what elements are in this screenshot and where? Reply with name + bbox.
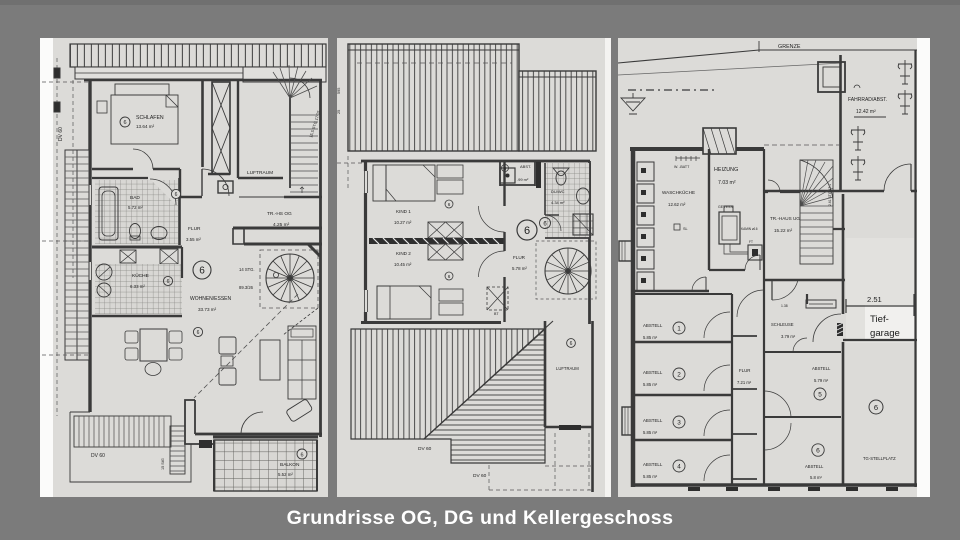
svg-text:595: 595 [337, 88, 341, 94]
svg-text:SCHLAFEN: SCHLAFEN [136, 115, 164, 121]
svg-text:5.8 m²: 5.8 m² [810, 475, 822, 480]
svg-text:89.3/26: 89.3/26 [239, 285, 254, 290]
svg-text:5.85 m²: 5.85 m² [643, 430, 658, 435]
svg-text:ABSTELL: ABSTELL [643, 323, 663, 328]
svg-text:6: 6 [175, 192, 178, 198]
svg-text:KÜCHE: KÜCHE [132, 272, 149, 279]
svg-text:1.38: 1.38 [781, 304, 788, 308]
svg-text:6: 6 [524, 225, 530, 237]
svg-text:KAMIN ø16: KAMIN ø16 [741, 227, 758, 231]
svg-text:Tief-: Tief- [870, 314, 889, 325]
svg-text:3.55 m²: 3.55 m² [186, 237, 201, 242]
svg-text:6: 6 [816, 448, 820, 455]
svg-text:DU/WC: DU/WC [551, 189, 565, 194]
svg-text:3: 3 [677, 420, 681, 427]
svg-text:2.61 STG 17.1: 2.61 STG 17.1 [828, 184, 832, 206]
svg-text:5.52 m²: 5.52 m² [278, 472, 293, 477]
svg-text:7.21 m²: 7.21 m² [737, 380, 752, 385]
svg-text:ABSTELL: ABSTELL [643, 418, 663, 423]
svg-text:5.79 m²: 5.79 m² [814, 378, 829, 383]
svg-text:garage: garage [870, 328, 900, 339]
svg-text:FLUR: FLUR [513, 255, 526, 260]
svg-text:5.72 m²: 5.72 m² [128, 205, 143, 210]
svg-text:5: 5 [818, 392, 822, 399]
svg-text:15.22 m²: 15.22 m² [774, 228, 793, 233]
svg-text:BT: BT [494, 312, 499, 316]
svg-text:6: 6 [167, 279, 170, 285]
svg-text:BAD: BAD [130, 195, 140, 201]
svg-text:6: 6 [300, 452, 303, 458]
svg-text:2.51: 2.51 [867, 295, 882, 304]
svg-text:W. -BATT: W. -BATT [674, 165, 690, 169]
svg-text:13.64 m²: 13.64 m² [136, 124, 155, 129]
svg-text:TR.-HS OG: TR.-HS OG [267, 211, 292, 217]
svg-text:LUFTRAUM: LUFTRAUM [556, 366, 579, 371]
svg-text:5.85 m²: 5.85 m² [643, 474, 658, 479]
svg-text:6: 6 [197, 330, 200, 336]
svg-text:ABSTELL: ABSTELL [812, 366, 831, 371]
svg-text:ABSTELL: ABSTELL [805, 464, 824, 469]
svg-text:DV 60: DV 60 [473, 473, 487, 479]
svg-text:6: 6 [199, 266, 205, 277]
svg-text:6: 6 [448, 202, 451, 207]
svg-text:WASCHKÜCHE: WASCHKÜCHE [662, 189, 695, 195]
svg-text:BALKON: BALKON [280, 462, 300, 468]
svg-text:6: 6 [570, 341, 573, 347]
svg-text:25: 25 [337, 110, 341, 114]
svg-text:TR.-HAUS UG: TR.-HAUS UG [770, 216, 800, 221]
svg-text:LUFTRAUM: LUFTRAUM [247, 170, 273, 176]
svg-text:ABST.: ABST. [520, 164, 531, 169]
svg-text:WOHNEN/ESSEN: WOHNEN/ESSEN [190, 296, 232, 302]
svg-text:SCHLEUSE: SCHLEUSE [771, 322, 794, 327]
svg-text:2: 2 [677, 372, 681, 379]
svg-text:5.85 m²: 5.85 m² [643, 382, 658, 387]
svg-text:5.85 m²: 5.85 m² [643, 335, 658, 340]
svg-text:12.42 m²: 12.42 m² [856, 109, 876, 115]
svg-text:10.45 m²: 10.45 m² [394, 262, 412, 267]
svg-text:FLUR: FLUR [739, 368, 750, 373]
svg-text:7.03 m²: 7.03 m² [718, 180, 736, 186]
svg-text:FAHRRAD/ABST.: FAHRRAD/ABST. [848, 97, 887, 103]
svg-text:4: 4 [677, 464, 681, 471]
svg-text:ABSTELL: ABSTELL [643, 462, 663, 467]
svg-text:DV 60: DV 60 [58, 127, 64, 141]
svg-text:ABSTELL: ABSTELL [643, 370, 663, 375]
svg-text:6: 6 [123, 120, 126, 126]
svg-text:.99 m²: .99 m² [517, 177, 529, 182]
svg-text:5.78 m²: 5.78 m² [512, 266, 527, 271]
svg-text:15 StG: 15 StG [161, 458, 165, 470]
svg-text:GRENZE: GRENZE [778, 44, 801, 50]
svg-text:HEIZUNG: HEIZUNG [714, 167, 738, 173]
svg-text:DV 60: DV 60 [91, 453, 105, 459]
svg-text:SL: SL [683, 227, 688, 231]
svg-text:KIND 1: KIND 1 [396, 209, 411, 214]
svg-text:12.62 m²: 12.62 m² [668, 202, 686, 207]
svg-text:FLUR: FLUR [188, 226, 201, 232]
svg-text:6.33 m²: 6.33 m² [130, 284, 145, 289]
svg-text:33.73 m²: 33.73 m² [198, 307, 217, 312]
svg-text:6: 6 [448, 274, 451, 279]
svg-text:TG-STELLPLATZ: TG-STELLPLATZ [863, 456, 896, 461]
svg-text:6: 6 [874, 403, 878, 412]
svg-text:KIND 2: KIND 2 [396, 251, 411, 256]
svg-text:DV 60: DV 60 [418, 446, 432, 452]
svg-text:3.79 m²: 3.79 m² [781, 334, 796, 339]
svg-text:4.34 m²: 4.34 m² [551, 200, 565, 205]
svg-text:1: 1 [677, 326, 681, 333]
svg-text:14 STG.: 14 STG. [239, 267, 255, 272]
svg-text:10.27 m²: 10.27 m² [394, 220, 412, 225]
svg-text:FT: FT [749, 240, 753, 244]
